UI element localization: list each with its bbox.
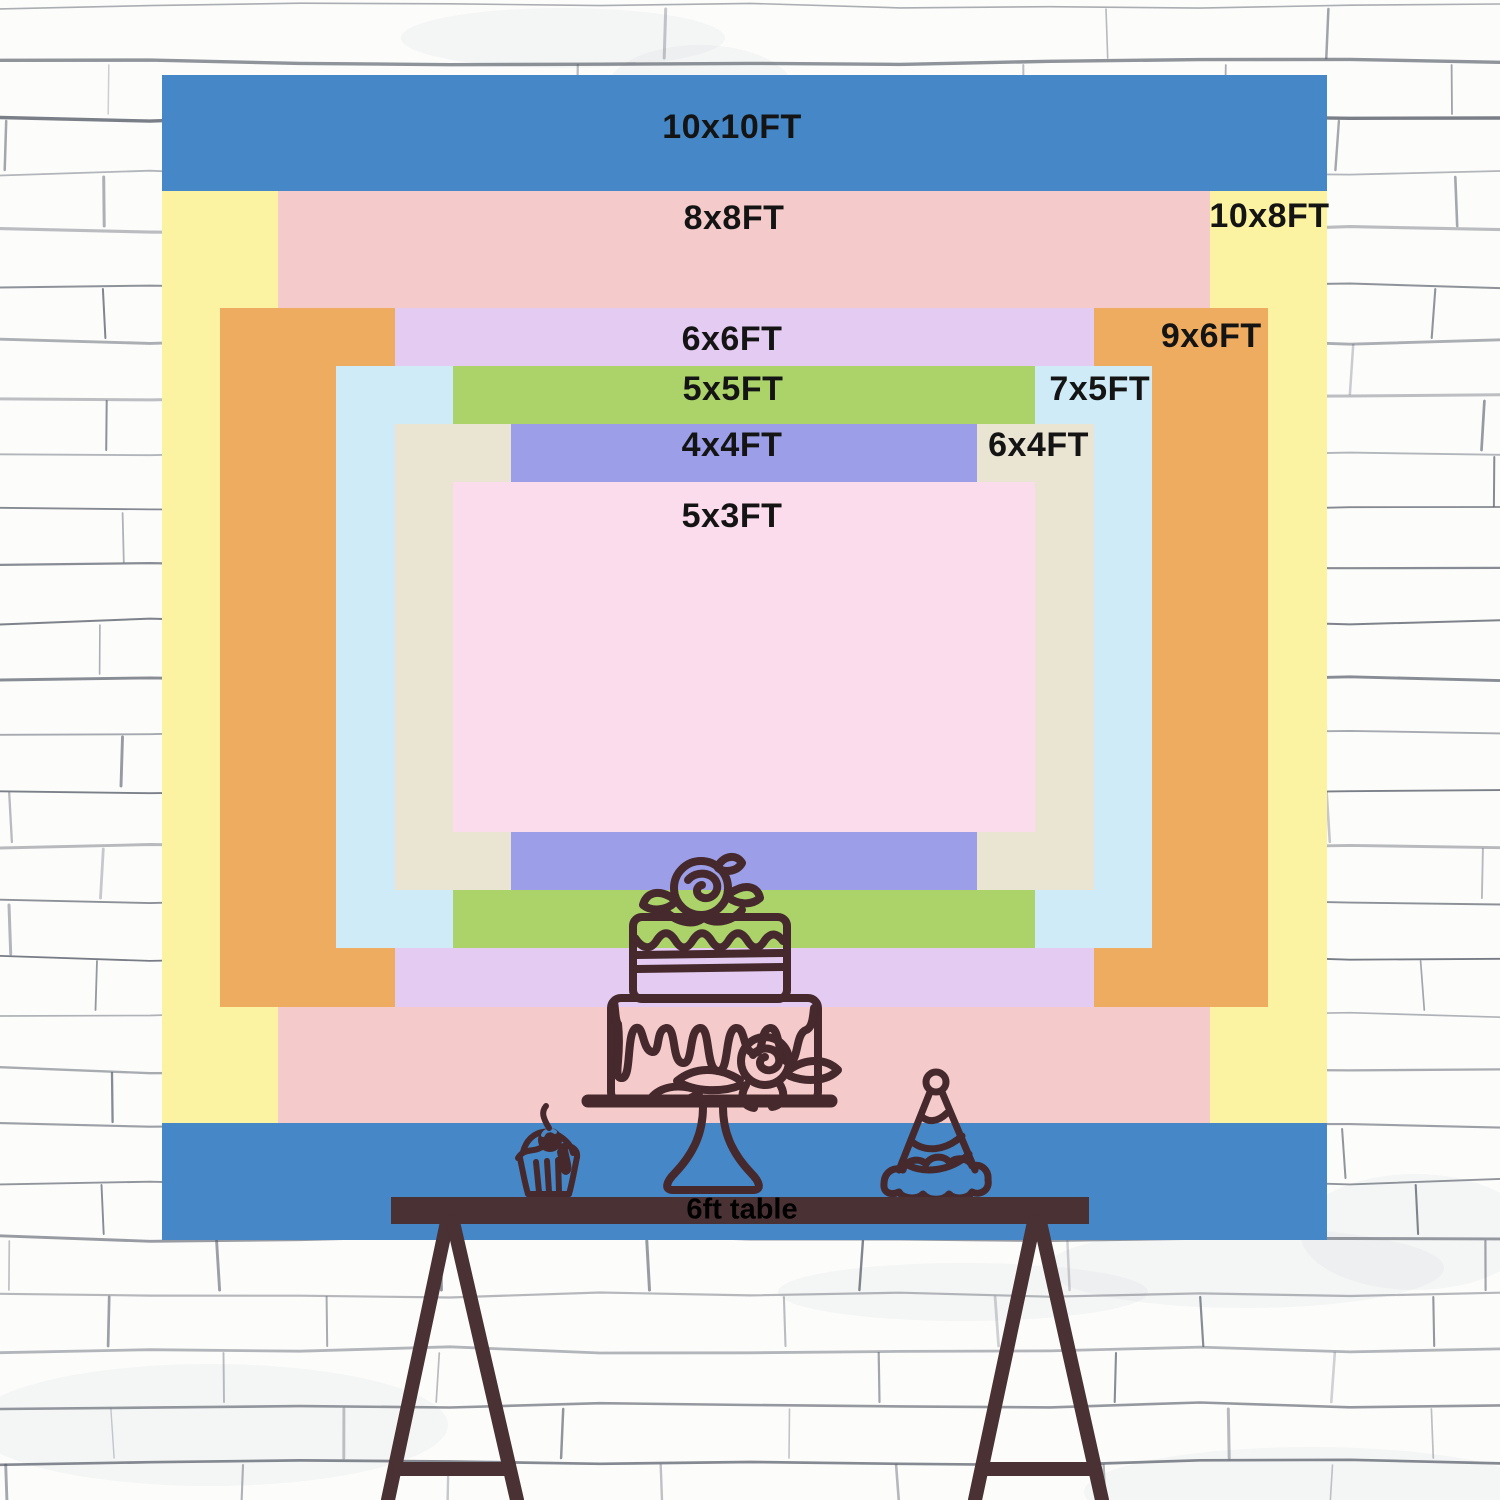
cupcake-illustration [518, 1106, 577, 1194]
table-size-label: 6ft table [686, 1196, 797, 1225]
table [388, 1197, 1102, 1500]
table-and-decorations [0, 0, 1500, 1500]
table-leg-right [975, 1222, 1102, 1500]
backdrop-size-chart: 10x10FT10x8FT8x8FT9x6FT6x6FT7x5FT5x5FT6x… [0, 0, 1500, 1500]
cake-illustration [588, 857, 838, 1190]
party-hat-illustration [884, 1072, 988, 1199]
table-leg-left [388, 1222, 517, 1500]
